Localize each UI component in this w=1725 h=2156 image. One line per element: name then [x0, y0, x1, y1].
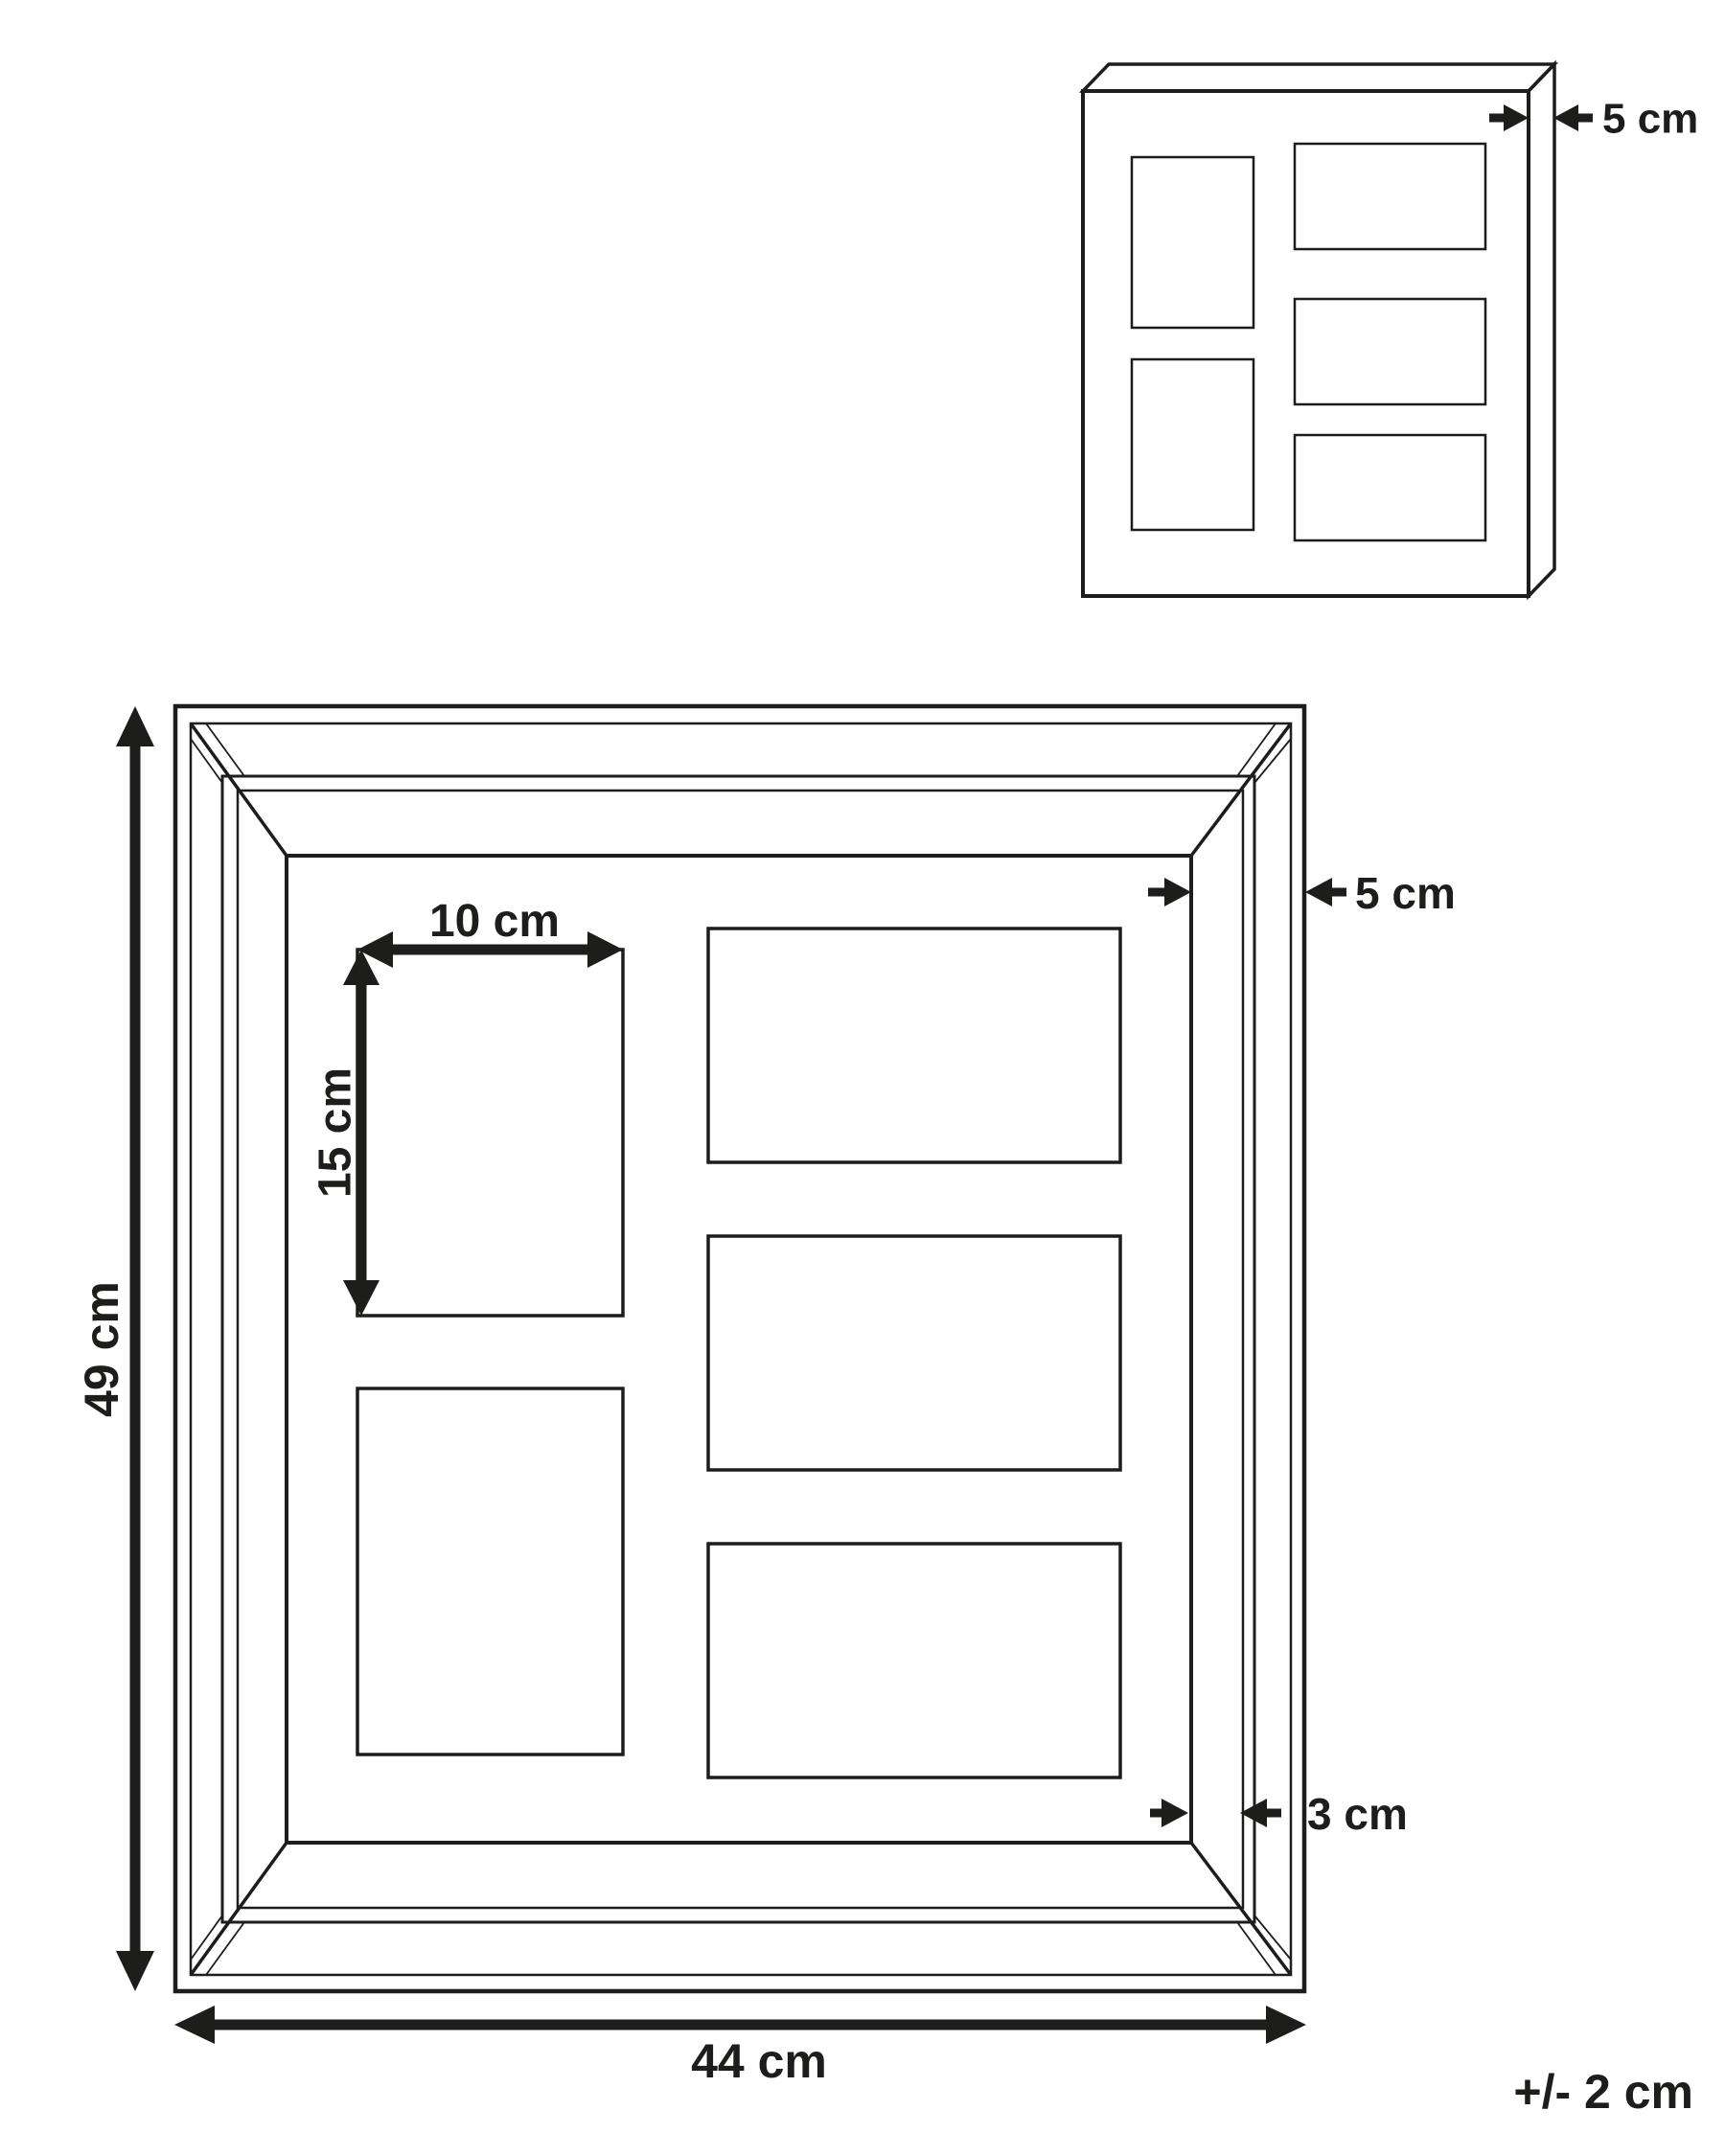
inner-arrow-right-icon	[1161, 1799, 1188, 1827]
frame-border-label: 5 cm	[1355, 868, 1456, 918]
frame-top-face	[1083, 64, 1554, 91]
photo-height-label: 15 cm	[310, 1067, 361, 1198]
border-arrow-left-icon	[1305, 878, 1332, 906]
depth-label: 5 cm	[1602, 96, 1698, 143]
perspective-view: 5 cm	[1083, 64, 1698, 596]
frame-inner-edge	[287, 856, 1191, 1843]
photo-slot-portrait	[357, 950, 623, 1316]
frame-moulding-line-2	[191, 723, 1291, 1975]
frame-outer-edge	[175, 706, 1304, 1991]
arrow-down-icon	[343, 1280, 379, 1316]
inner-border-label: 3 cm	[1307, 1789, 1408, 1839]
frame-dimension-diagram: 5 cm	[0, 0, 1725, 2156]
frame-side-face	[1529, 64, 1554, 596]
overall-height-dimension: 49 cm	[75, 706, 154, 1991]
photo-slot-landscape	[1295, 144, 1485, 249]
arrow-up-icon	[116, 706, 154, 746]
photo-slot-landscape	[708, 929, 1120, 1162]
photo-slot-landscape	[1295, 299, 1485, 404]
photo-slot-portrait	[1132, 157, 1253, 328]
overall-height-label: 49 cm	[75, 1281, 128, 1417]
photo-slot-portrait	[1132, 359, 1253, 530]
inner-border-dimension: 3 cm	[1150, 1789, 1408, 1839]
overall-width-dimension: 44 cm	[174, 2006, 1306, 2088]
arrow-down-icon	[116, 1951, 154, 1991]
frame-border-dimension: 5 cm	[1148, 868, 1456, 918]
photo-slot-landscape	[708, 1236, 1120, 1470]
depth-arrow-left-icon	[1553, 104, 1578, 131]
frame-dimension-diagram-page: 5 cm	[0, 0, 1725, 2156]
overall-width-label: 44 cm	[691, 2034, 827, 2088]
photo-width-dimension: 10 cm	[357, 896, 623, 968]
border-arrow-right-icon	[1164, 878, 1191, 906]
arrow-right-icon	[587, 931, 623, 968]
depth-dimension: 5 cm	[1489, 96, 1698, 143]
tolerance-note: +/- 2 cm	[1513, 2065, 1693, 2119]
photo-slot-portrait	[357, 1388, 623, 1755]
front-view: 10 cm 15 cm 49 cm 44 cm	[75, 706, 1456, 2088]
photo-width-label: 10 cm	[429, 896, 560, 947]
frame-front-face	[1083, 91, 1529, 596]
photo-slot-landscape	[708, 1544, 1120, 1778]
photo-height-dimension: 15 cm	[310, 950, 380, 1316]
corner-miter-lines	[191, 723, 1291, 1975]
depth-arrow-right-icon	[1504, 104, 1529, 131]
arrow-right-icon	[1266, 2006, 1306, 2044]
arrow-left-icon	[174, 2006, 215, 2044]
photo-slot-landscape	[1295, 435, 1485, 540]
